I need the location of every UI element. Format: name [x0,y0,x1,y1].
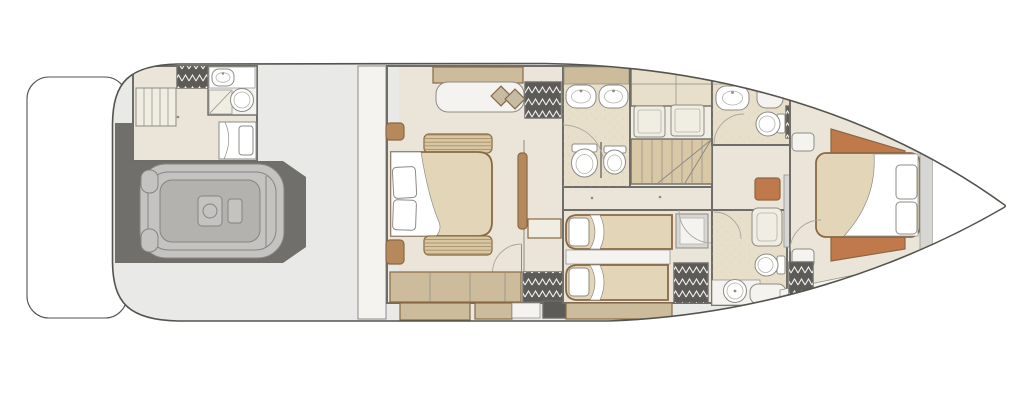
berth-pillow [239,126,253,155]
vip-foyer [752,175,791,247]
bed-pillow-1 [392,166,417,198]
bow-walkway [920,118,933,294]
vip-foyer-floor [712,143,790,211]
sliding-door-panel [518,153,527,229]
twin-hull-locker [566,303,672,319]
midship-stairs-block [630,66,712,187]
wardrobe-hangers [789,262,813,303]
tender-bow-tube-bottom [141,229,158,252]
pillow-2 [896,202,917,234]
stair-box [631,139,712,184]
pillow [569,218,589,246]
tender-console [198,196,222,226]
vip-side-wardrobe [789,262,813,303]
twin-wardrobe [674,263,708,303]
sink-drain [734,290,737,293]
pillow [569,268,589,296]
bath-cabinets [713,67,763,84]
master-wardrobe-bottom [523,272,563,302]
corner-shower [757,83,783,108]
pillow-1 [896,165,917,199]
vanity-stool [755,178,780,200]
corridor-dot-1 [591,197,594,200]
vanity-desk [752,208,782,246]
twin-cabin [563,210,712,319]
vanity-counter [564,67,629,84]
tender-seat [228,199,242,223]
tender-bow-tube-top [141,170,158,193]
nightstand-bottom [386,240,404,264]
stairs-box [136,88,176,126]
main-staircase [631,139,712,184]
crew-cabin [133,66,257,161]
toilet-bowl-2 [604,150,626,174]
bow-void [933,126,1004,285]
floor-plan-canvas [0,0,1028,417]
sofa-backrest [433,67,523,83]
hull-locker-1 [400,303,470,320]
sink-faucet [731,91,734,94]
crew-wardrobe [177,66,208,88]
vip-cabin [780,70,933,315]
crew-sink-faucet [222,72,224,74]
master-lowboard [390,272,521,302]
crew-bathroom [208,66,257,115]
bed-slat-lines-top [424,134,492,153]
toilet-bowl-1 [572,149,598,177]
twin-cabinet-inner [680,218,704,244]
wardrobe-hangers [177,66,208,88]
bed-slat-lines-bottom [424,236,492,255]
sink-basin [716,86,749,110]
stair-dot [177,116,180,119]
vip-nightstand-top [792,133,814,151]
vip-bed [816,153,920,237]
sink-basin-2 [599,85,628,108]
master-wardrobe-top [525,82,561,118]
sink-faucet-2 [612,90,615,93]
master-left-void-top [388,67,399,123]
wardrobe-hangers [523,272,563,302]
master-cabinet [528,219,561,238]
twin-bed-1 [566,215,672,249]
bed-pillow-2 [392,200,416,231]
hull-locker-3 [512,303,540,318]
crew-berth [219,122,256,159]
corridor-dot-2 [659,196,662,199]
crew-sink-basin [212,69,234,86]
master-cabin [386,66,567,320]
wardrobe-hangers [525,82,561,118]
toilet-bowl [756,112,780,136]
yacht-lower-deck-plan [0,0,1028,417]
engine-room-strip [358,66,386,319]
crew-stairs [136,88,179,126]
wardrobe-hangers [674,263,708,303]
hull-locker-2 [475,303,512,319]
lowboard-body [390,272,521,302]
between-beds-shelf [566,250,670,264]
sink-faucet-1 [580,90,583,93]
twin-bed-2 [566,265,668,300]
tender-boat [140,164,284,258]
master-sofa [433,67,525,112]
sink-basin-1 [566,85,596,108]
nightstand-top [386,123,404,140]
master-bathroom [563,66,630,187]
upper-cabinets [631,66,712,106]
